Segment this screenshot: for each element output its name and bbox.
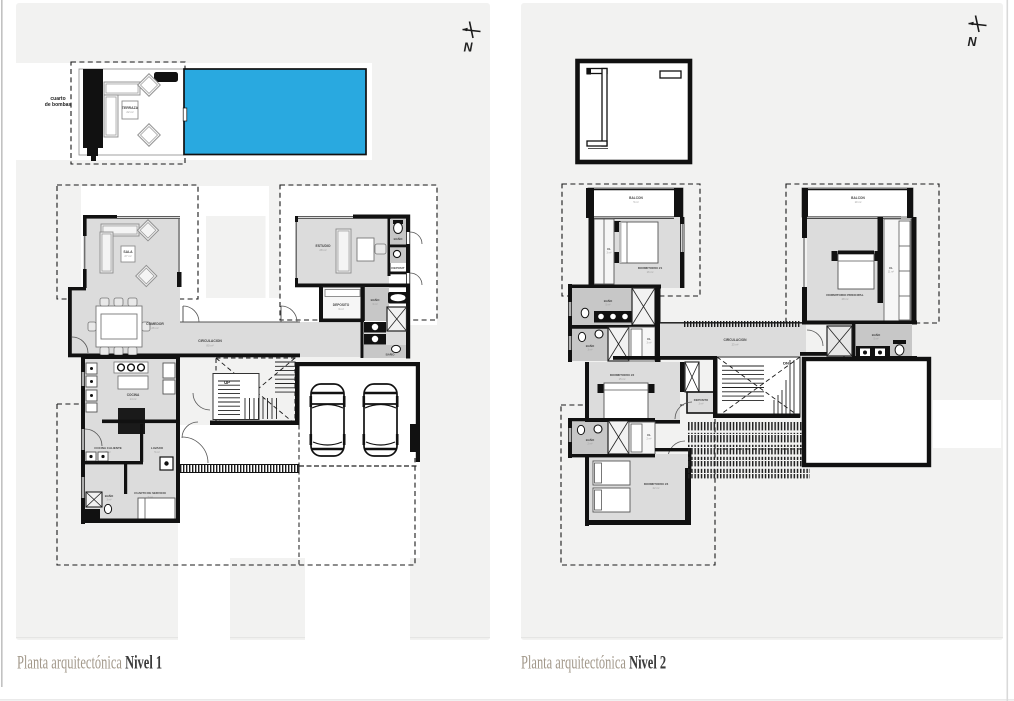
- svg-text:5 m²: 5 m²: [606, 304, 611, 307]
- svg-text:3 m²: 3 m²: [107, 499, 112, 502]
- svg-text:DORMITORIO #2: DORMITORIO #2: [610, 373, 635, 377]
- svg-text:22 m²: 22 m²: [126, 110, 133, 114]
- svg-text:3 m²: 3 m²: [647, 342, 652, 345]
- svg-text:BALCON: BALCON: [851, 196, 865, 200]
- svg-text:5 m²: 5 m²: [154, 450, 159, 454]
- svg-text:3 m²: 3 m²: [338, 307, 344, 311]
- svg-text:BAÑO: BAÑO: [872, 332, 881, 337]
- svg-text:DORMITORIO #3: DORMITORIO #3: [644, 482, 669, 486]
- svg-text:BAÑO: BAÑO: [386, 352, 395, 357]
- svg-text:DORMITORIO PRINCIPAL: DORMITORIO PRINCIPAL: [826, 293, 863, 297]
- svg-text:DN: DN: [783, 361, 789, 366]
- svg-text:5 m²: 5 m²: [874, 338, 879, 341]
- svg-text:CIRCULACION: CIRCULACION: [198, 339, 222, 343]
- svg-text:10 m²: 10 m²: [855, 200, 862, 204]
- svg-text:22 m²: 22 m²: [653, 486, 660, 490]
- svg-text:16 m²: 16 m²: [647, 270, 654, 274]
- svg-text:CL: CL: [889, 266, 893, 270]
- svg-text:80 m²: 80 m²: [206, 344, 213, 348]
- svg-text:CUARTO DE SERVICIO: CUARTO DE SERVICIO: [134, 491, 166, 495]
- svg-text:3 m²: 3 m²: [372, 302, 377, 306]
- svg-text:3 m²: 3 m²: [699, 403, 704, 406]
- svg-text:5 m²: 5 m²: [633, 200, 638, 204]
- svg-text:26 m²: 26 m²: [151, 326, 158, 330]
- svg-text:UP: UP: [224, 380, 230, 385]
- svg-text:BAÑO: BAÑO: [586, 343, 595, 348]
- svg-text:CIRCULACION: CIRCULACION: [723, 338, 747, 342]
- svg-text:3 m²: 3 m²: [607, 252, 612, 255]
- svg-text:CL: CL: [647, 337, 651, 341]
- svg-text:COCINA CALIENTE: COCINA CALIENTE: [94, 446, 122, 450]
- svg-text:CL: CL: [607, 247, 611, 251]
- svg-text:DEPOSITO: DEPOSITO: [694, 398, 709, 402]
- svg-text:28 m²: 28 m²: [842, 297, 849, 301]
- svg-text:2 m²: 2 m²: [588, 443, 593, 446]
- svg-text:N: N: [463, 41, 473, 55]
- svg-text:2 m²: 2 m²: [647, 438, 652, 441]
- svg-text:27 m²: 27 m²: [124, 254, 131, 258]
- svg-text:BALCON: BALCON: [629, 196, 643, 200]
- svg-text:N: N: [967, 35, 977, 49]
- svg-text:LAVADO: LAVADO: [151, 446, 164, 450]
- svg-text:Planta arquitectónica Nivel 2: Planta arquitectónica Nivel 2: [521, 653, 666, 673]
- svg-text:CL: CL: [647, 433, 651, 437]
- svg-text:de bombas: de bombas: [45, 102, 72, 108]
- svg-text:BAÑO: BAÑO: [604, 298, 613, 303]
- svg-text:11 m²: 11 m²: [888, 271, 894, 274]
- svg-text:BAÑO: BAÑO: [371, 297, 380, 302]
- svg-text:23 m²: 23 m²: [732, 343, 739, 347]
- svg-text:DEPOSIT: DEPOSIT: [391, 266, 404, 270]
- svg-text:DORMITORIO #1: DORMITORIO #1: [638, 266, 663, 270]
- svg-text:BAÑO: BAÑO: [586, 437, 595, 442]
- svg-text:3 m²: 3 m²: [588, 349, 593, 352]
- svg-text:Planta arquitectónica Nivel 1: Planta arquitectónica Nivel 1: [17, 653, 162, 673]
- svg-text:28 m²: 28 m²: [319, 248, 326, 252]
- svg-text:BAÑO: BAÑO: [394, 236, 403, 241]
- svg-text:14 m²: 14 m²: [130, 397, 137, 401]
- svg-text:COCINA: COCINA: [127, 393, 140, 397]
- svg-text:15 m²: 15 m²: [619, 377, 626, 381]
- svg-text:BAÑO: BAÑO: [105, 493, 114, 498]
